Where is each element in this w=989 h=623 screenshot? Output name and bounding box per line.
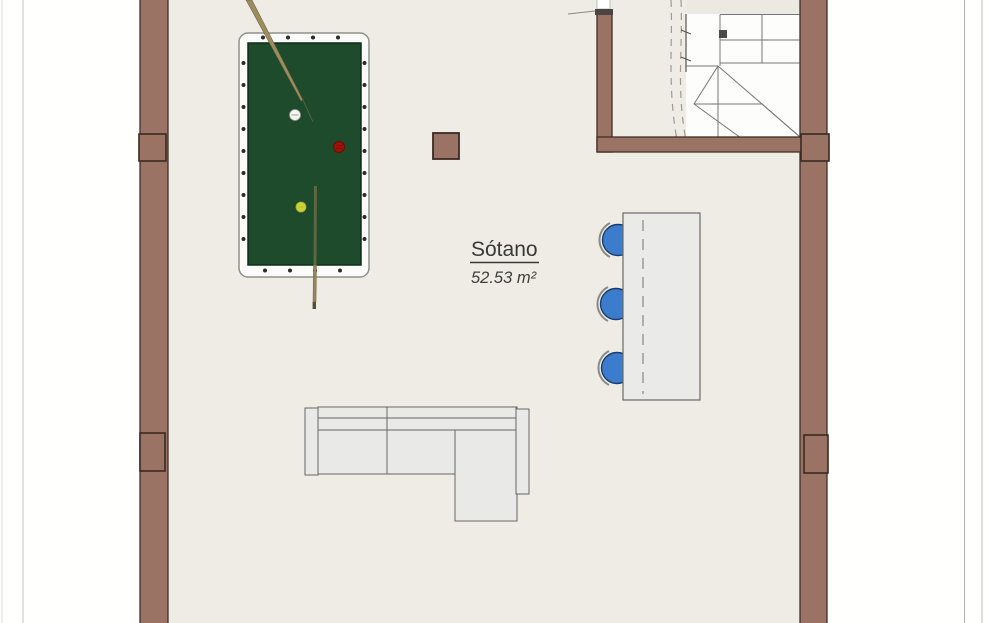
floor-plan: Sótano 52.53 m² [0, 0, 989, 623]
stair-side-wall [597, 13, 612, 152]
support-column [433, 133, 459, 159]
pool-table-felt [248, 43, 361, 265]
pilaster-right-lower [804, 435, 828, 473]
bar-counter-group [597, 213, 700, 400]
pilaster-left-upper [139, 134, 166, 161]
right-wall [800, 0, 827, 623]
left-wall [140, 0, 168, 623]
room-area: 52.53 m² [471, 269, 537, 287]
pilaster-right-upper [801, 134, 829, 161]
ball-yellow [296, 202, 306, 212]
sofa-right-armrest [516, 409, 529, 494]
stair-well [686, 0, 800, 140]
room-label: Sótano [471, 238, 538, 261]
room-label-group: Sótano 52.53 m² [470, 238, 539, 287]
pilaster-left-lower [140, 433, 165, 471]
stair-newel-marker [719, 30, 727, 38]
ball-red [334, 142, 345, 153]
bar-counter [623, 213, 700, 400]
sofa-left-armrest [305, 408, 318, 475]
stair-top-floor-strip [686, 0, 800, 14]
pool-table [239, 0, 369, 309]
staircase [671, 0, 800, 140]
cue-ball-white [290, 110, 301, 121]
stair-bottom-wall [597, 137, 803, 152]
